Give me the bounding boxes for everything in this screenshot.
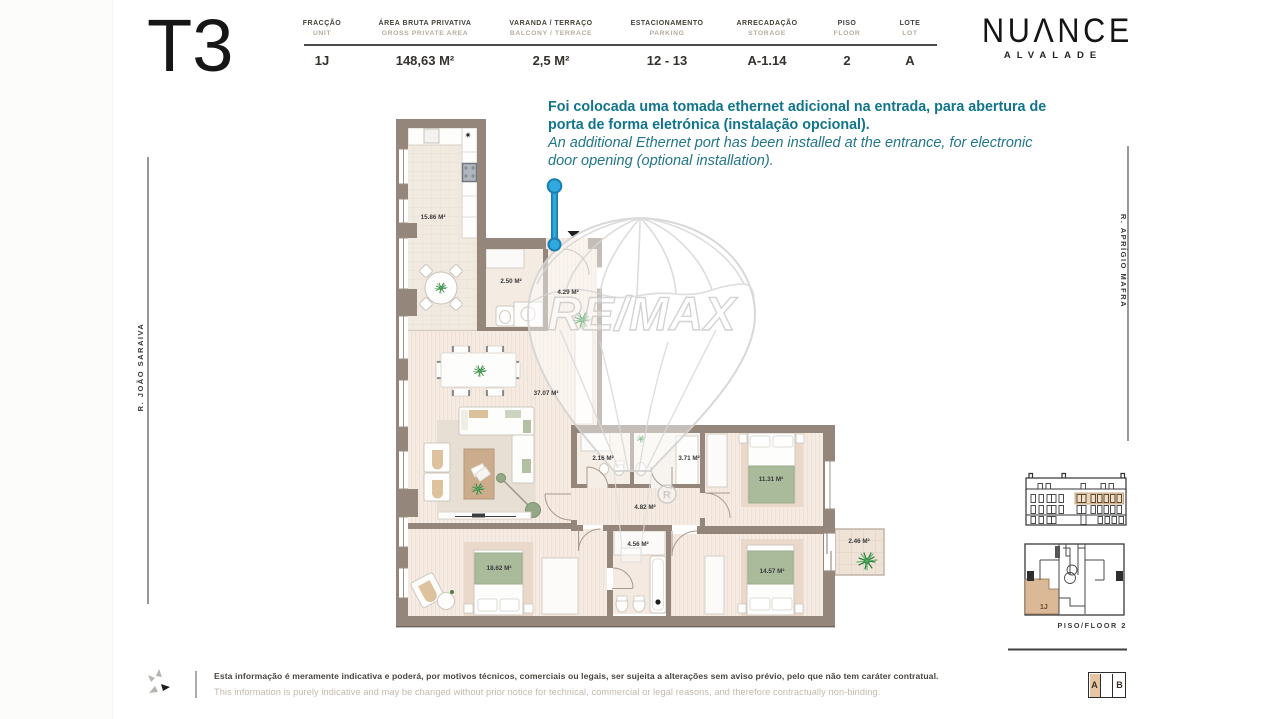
svg-text:2.46 M²: 2.46 M² [848,538,869,545]
svg-text:18.62 M²: 18.62 M² [487,565,512,572]
svg-text:3.71 M²: 3.71 M² [678,455,699,462]
svg-text:4.29 M²: 4.29 M² [557,289,578,296]
svg-text:4.82 M²: 4.82 M² [634,504,655,511]
svg-text:2.16 M²: 2.16 M² [592,455,613,462]
svg-text:2.50 M²: 2.50 M² [500,278,521,285]
svg-text:4.56 M²: 4.56 M² [627,541,648,548]
svg-text:11.31 M²: 11.31 M² [759,476,784,483]
svg-text:14.57 M²: 14.57 M² [760,568,785,575]
svg-text:R. JOÃO SARAIVA: R. JOÃO SARAIVA [136,323,145,412]
svg-text:R. APRÍGIO MAFRA: R. APRÍGIO MAFRA [1119,214,1128,308]
svg-text:R: R [663,490,671,502]
svg-text:1J: 1J [1040,604,1048,611]
svg-text:PISO/FLOOR 2: PISO/FLOOR 2 [1057,621,1127,630]
svg-text:37.07 M²: 37.07 M² [534,390,559,397]
svg-text:15.86 M²: 15.86 M² [421,214,446,221]
